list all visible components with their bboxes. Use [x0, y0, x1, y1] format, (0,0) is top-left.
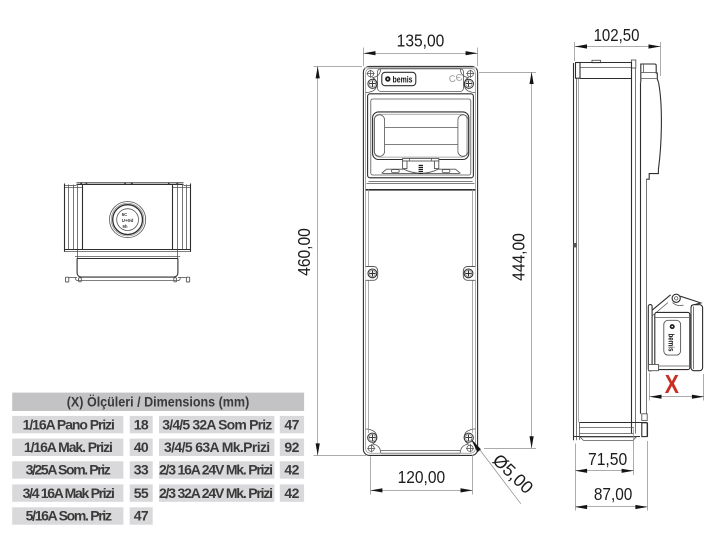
- svg-text:102,50: 102,50: [594, 25, 640, 45]
- svg-text:120,00: 120,00: [398, 467, 446, 487]
- svg-text:9h: 9h: [122, 224, 127, 229]
- svg-text:18: 18: [134, 416, 149, 432]
- svg-text:X: X: [665, 371, 679, 399]
- svg-text:42: 42: [284, 485, 299, 501]
- svg-text:2/3 16A 24V Mk. Prizi: 2/3 16A 24V Mk. Prizi: [159, 462, 273, 478]
- svg-text:460,00: 460,00: [294, 228, 314, 276]
- svg-text:47: 47: [134, 508, 149, 524]
- svg-text:444,00: 444,00: [508, 233, 528, 281]
- svg-text:1/16A Mak. Prizi: 1/16A Mak. Prizi: [24, 439, 113, 455]
- svg-text:92: 92: [284, 439, 299, 455]
- svg-text:bemis: bemis: [393, 75, 413, 85]
- svg-text:(X) Ölçüleri / Dimensions (mm): (X) Ölçüleri / Dimensions (mm): [67, 394, 250, 410]
- svg-text:5/16A Som. Priz: 5/16A Som. Priz: [26, 508, 112, 524]
- svg-text:3/25A Som. Priz: 3/25A Som. Priz: [26, 462, 111, 478]
- svg-text:3/4/5 32A Som Priz: 3/4/5 32A Som Priz: [162, 416, 272, 432]
- svg-text:3/4/5 63A Mk.Prizi: 3/4/5 63A Mk.Prizi: [164, 439, 270, 455]
- svg-text:33: 33: [134, 462, 149, 478]
- svg-text:55: 55: [134, 485, 149, 501]
- svg-text:CЄ: CЄ: [448, 72, 463, 85]
- svg-text:47: 47: [284, 416, 299, 432]
- svg-text:135,00: 135,00: [397, 31, 445, 51]
- svg-text:42: 42: [284, 462, 299, 478]
- svg-text:71,50: 71,50: [588, 449, 627, 469]
- svg-text:bemis: bemis: [666, 334, 675, 352]
- svg-text:3/4 16A Mak Prizi: 3/4 16A Mak Prizi: [23, 485, 115, 501]
- svg-text:87,00: 87,00: [594, 484, 633, 504]
- svg-text:1/16A Pano Prizi: 1/16A Pano Prizi: [23, 416, 115, 432]
- svg-text:U+Θd: U+Θd: [122, 218, 134, 223]
- svg-text:40: 40: [134, 439, 149, 455]
- svg-text:2/3 32A 24V Mk. Prizi: 2/3 32A 24V Mk. Prizi: [159, 485, 273, 501]
- svg-text:6C: 6C: [122, 212, 128, 217]
